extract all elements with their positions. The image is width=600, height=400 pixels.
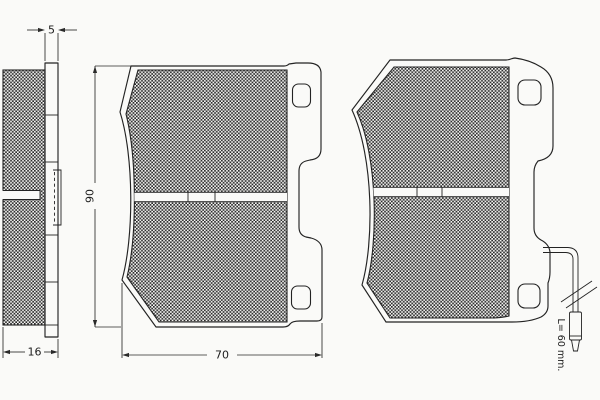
side-backplate <box>45 63 58 337</box>
wear-indicator: L= 60 mm. <box>543 248 597 372</box>
pad-front-view-right <box>350 58 553 322</box>
pad-side-view: 5 16 <box>2 24 77 359</box>
mid-bottom-lug-hole <box>292 286 311 309</box>
pad-front-view-left: 90 70 <box>84 63 323 362</box>
side-groove-slot <box>2 191 40 200</box>
technical-drawing-canvas: 5 16 <box>0 0 600 400</box>
mid-groove <box>118 192 290 202</box>
wear-indicator-length-label: L= 60 mm. <box>555 319 566 372</box>
brake-pad-drawing: 5 16 <box>0 0 600 400</box>
dim-label-70: 70 <box>215 349 229 362</box>
dimension-backplate-thickness: 5 <box>27 24 77 62</box>
dim-label-5: 5 <box>48 24 55 37</box>
mid-top-lug-hole <box>293 84 311 107</box>
dim-label-16: 16 <box>28 346 42 359</box>
side-lug-outline <box>53 170 61 225</box>
wire-break-symbol <box>561 281 597 308</box>
wear-indicator-connector <box>570 312 582 351</box>
dimension-total-thickness: 16 <box>3 327 58 359</box>
dim-label-90: 90 <box>84 189 97 203</box>
right-top-lug-hole <box>518 80 541 105</box>
right-groove <box>350 187 515 197</box>
side-projection-lines <box>45 115 58 325</box>
right-bottom-lug-hole <box>518 284 540 308</box>
dimension-pad-height: 90 <box>84 66 132 327</box>
